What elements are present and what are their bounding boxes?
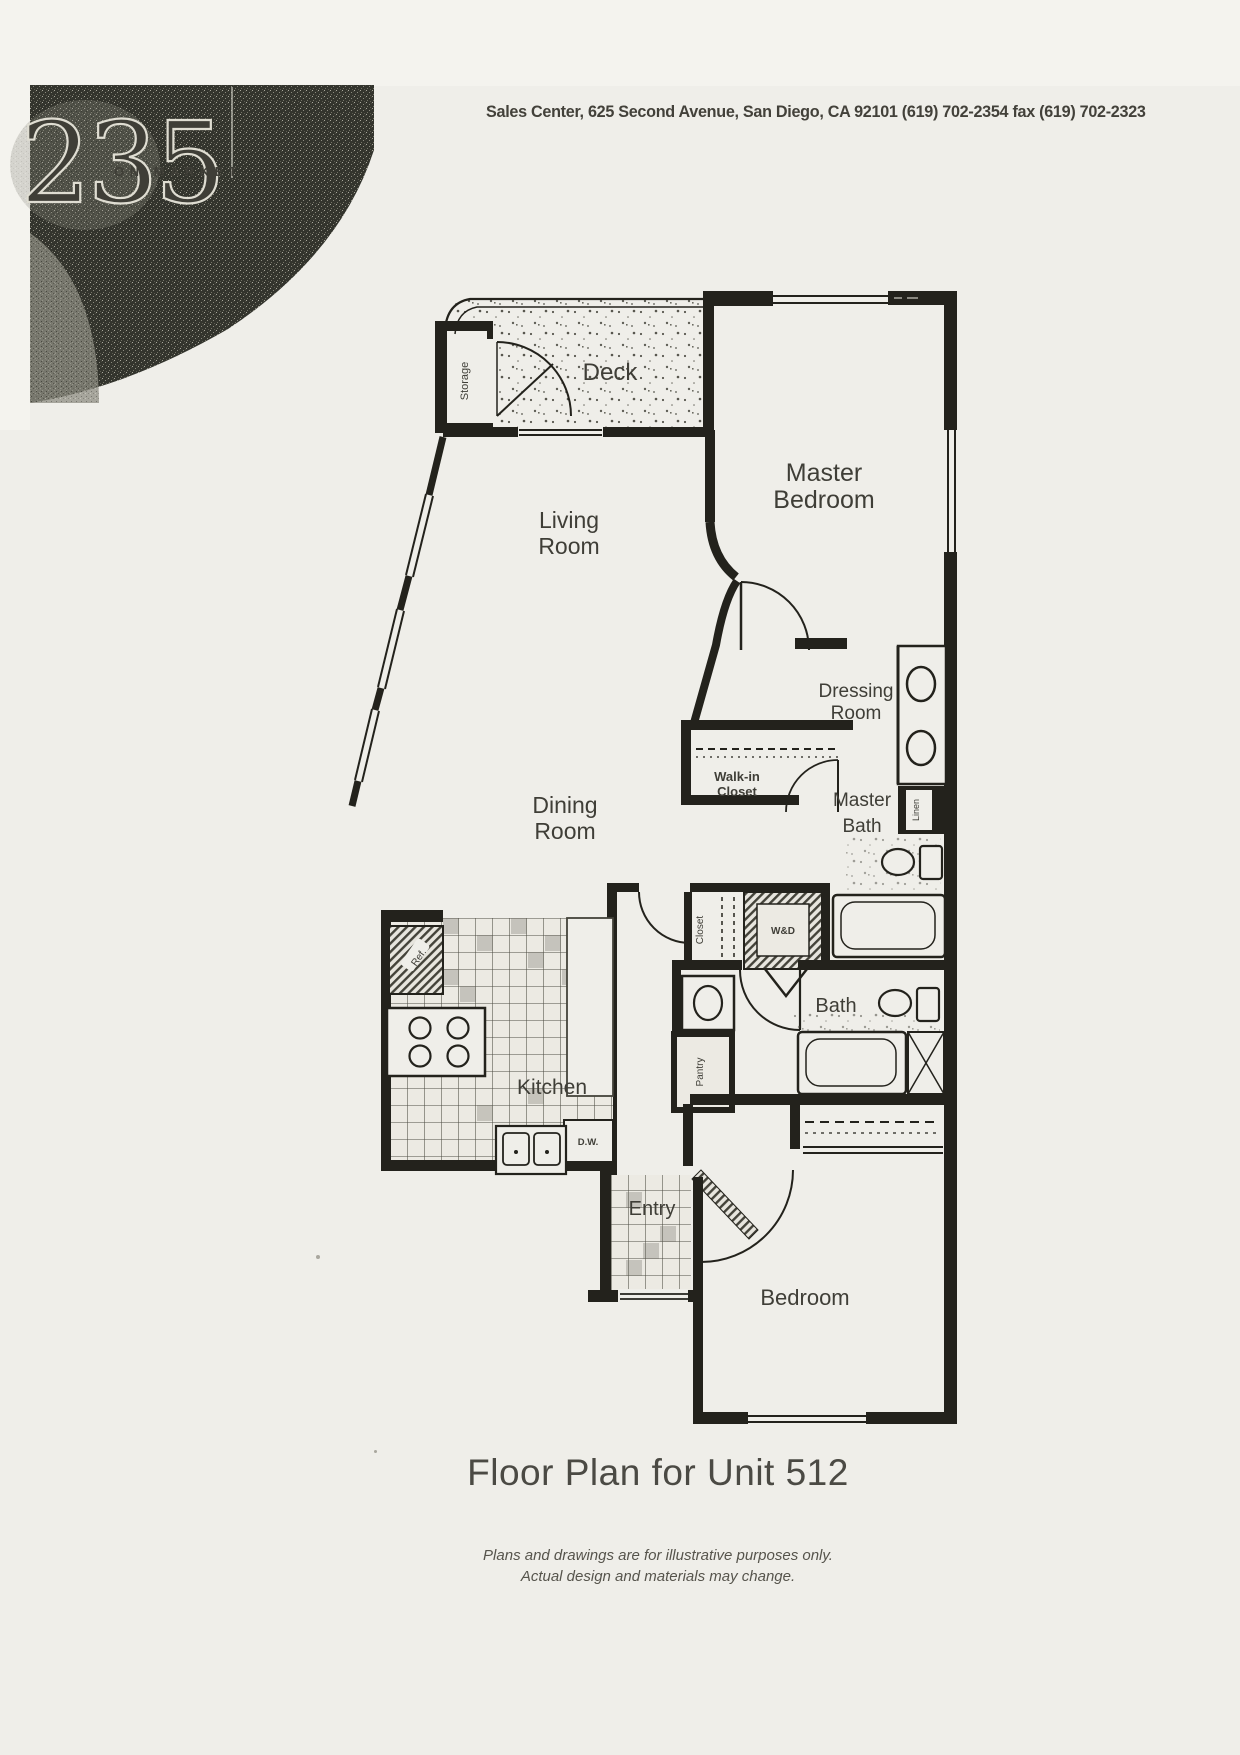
disclaimer-line-2: Actual design and materials may change.	[408, 1566, 908, 1587]
room-label-bath: Bath	[815, 995, 856, 1017]
room-label-living-room: Living	[539, 507, 599, 533]
room-label-kitchen: Kitchen	[517, 1076, 587, 1099]
bathtub-icon	[798, 1032, 906, 1094]
kitchen-sink-icon	[496, 1126, 566, 1174]
room-label-walk-in-closet: Walk-in	[714, 769, 760, 784]
room-label-deck: Deck	[583, 359, 639, 386]
refrigerator-icon: Ref.	[389, 926, 443, 994]
dressing-top-wall	[795, 638, 847, 649]
room-label-walk-in-closet-2: Closet	[717, 784, 757, 799]
disclaimer-line-1: Plans and drawings are for illustrative …	[408, 1545, 908, 1566]
room-label-dressing-room-2: Room	[831, 703, 882, 724]
entry-tile-floor	[609, 1175, 691, 1295]
room-label-storage: Storage	[459, 362, 471, 401]
page-title: Floor Plan for Unit 512	[458, 1452, 858, 1494]
vanity-double-sink	[898, 646, 946, 784]
bedroom: Bedroom	[683, 1104, 957, 1425]
kitchen-counter	[567, 918, 613, 1096]
room-label-wd: W&D	[771, 926, 795, 937]
room-label-dining-room: Dining	[532, 792, 597, 818]
room-label-master-bath-2: Bath	[842, 816, 881, 837]
room-label-closet: Closet	[695, 916, 706, 945]
room-label-linen: Linen	[911, 799, 921, 821]
closet-shelf-lines	[722, 897, 734, 962]
mb-left-wall-upper	[703, 291, 714, 430]
dining-room: Dining Room	[532, 792, 597, 844]
entry: Entry	[588, 1166, 793, 1303]
walk-in-closet: Walk-in Closet	[681, 720, 853, 812]
front-door-arc	[701, 1170, 793, 1262]
bathtub-icon	[833, 895, 945, 957]
bath-bottom-wall	[690, 1094, 946, 1105]
mb-left-wall-lower	[705, 430, 715, 522]
washer-dryer-icon: W&D	[744, 892, 822, 969]
bedroom-closet	[790, 1104, 943, 1154]
hall-curved-wall	[694, 581, 737, 723]
room-label-master-bedroom: Master	[786, 459, 862, 487]
sales-center-address: Sales Center, 625 Second Avenue, San Die…	[486, 103, 1133, 122]
logo-tagline: ON MARKET	[114, 164, 242, 179]
linen-closet: Linen	[898, 786, 946, 834]
deck-area: Deck	[445, 291, 773, 429]
room-label-master-bedroom-2: Bedroom	[773, 486, 874, 514]
hall-closet-door-arc	[639, 892, 690, 943]
room-label-pantry: Pantry	[695, 1058, 706, 1087]
deck-bottom-wall	[443, 426, 707, 438]
angled-exterior-wall	[352, 437, 443, 806]
scan-artifact-dot	[316, 1255, 320, 1259]
room-label-entry: Entry	[629, 1198, 676, 1220]
mb-wall-curve	[710, 522, 736, 577]
room-label-dining-room-2: Room	[534, 818, 595, 844]
deck-floor-stipple	[455, 296, 705, 429]
room-label-master-bath: Master	[833, 790, 892, 811]
room-label-bedroom: Bedroom	[760, 1285, 849, 1310]
hall-bath: Pantry Bath	[672, 963, 946, 1110]
dishwasher-icon: D.W.	[564, 1120, 613, 1162]
living-room: Living Room	[352, 437, 600, 806]
disclaimer-text: Plans and drawings are for illustrative …	[408, 1545, 908, 1587]
hall-bath-vanity	[682, 976, 734, 1030]
stove-icon	[387, 1008, 485, 1076]
shower-icon	[908, 1032, 944, 1094]
kitchen-top-wall	[381, 910, 443, 922]
room-label-living-room-2: Room	[538, 533, 599, 559]
storage-closet: Storage	[435, 321, 493, 433]
room-label-dressing-room: Dressing	[819, 681, 894, 702]
floor-plan-drawing: Deck Storage	[330, 250, 990, 1440]
living-room-windows	[355, 494, 433, 782]
scan-artifact-dot	[374, 1450, 377, 1453]
room-label-dw: D.W.	[578, 1137, 599, 1148]
kitchen: Ref. D.W. Kitchen	[381, 910, 613, 1174]
